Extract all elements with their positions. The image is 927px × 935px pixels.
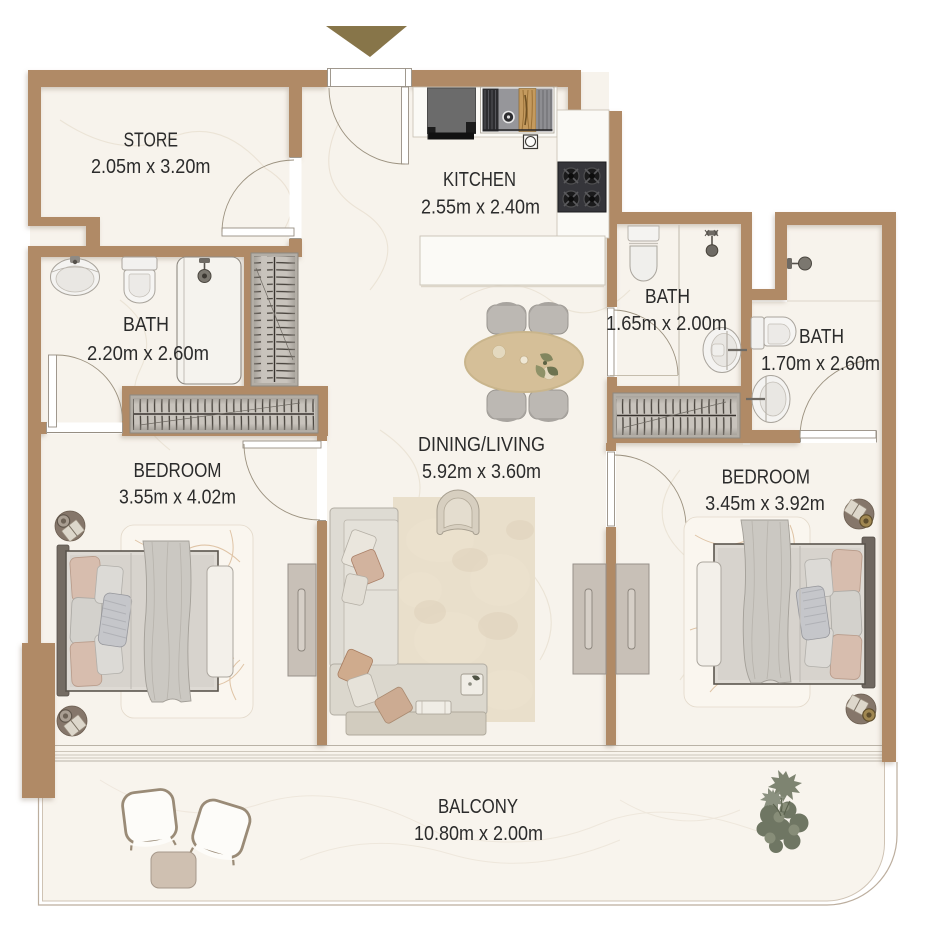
svg-text:BATH: BATH (123, 314, 169, 336)
svg-text:3.45m x 3.92m: 3.45m x 3.92m (705, 493, 825, 515)
svg-text:BATH: BATH (645, 286, 690, 308)
svg-text:5.92m x 3.60m: 5.92m x 3.60m (422, 461, 541, 483)
svg-text:STORE: STORE (123, 130, 178, 152)
svg-text:BEDROOM: BEDROOM (134, 460, 222, 482)
svg-text:1.70m x 2.60m: 1.70m x 2.60m (761, 353, 880, 375)
svg-text:BATH: BATH (799, 326, 844, 348)
svg-text:DINING/LIVING: DINING/LIVING (418, 434, 545, 456)
svg-text:KITCHEN: KITCHEN (443, 169, 516, 191)
svg-text:10.80m x 2.00m: 10.80m x 2.00m (414, 823, 543, 845)
svg-text:BALCONY: BALCONY (438, 796, 518, 818)
svg-text:3.55m x 4.02m: 3.55m x 4.02m (119, 487, 236, 509)
svg-text:1.65m x 2.00m: 1.65m x 2.00m (606, 313, 727, 335)
svg-text:2.55m x 2.40m: 2.55m x 2.40m (421, 197, 540, 219)
svg-text:2.05m x 3.20m: 2.05m x 3.20m (91, 156, 211, 178)
svg-text:2.20m x 2.60m: 2.20m x 2.60m (87, 343, 209, 365)
svg-text:BEDROOM: BEDROOM (722, 467, 810, 489)
